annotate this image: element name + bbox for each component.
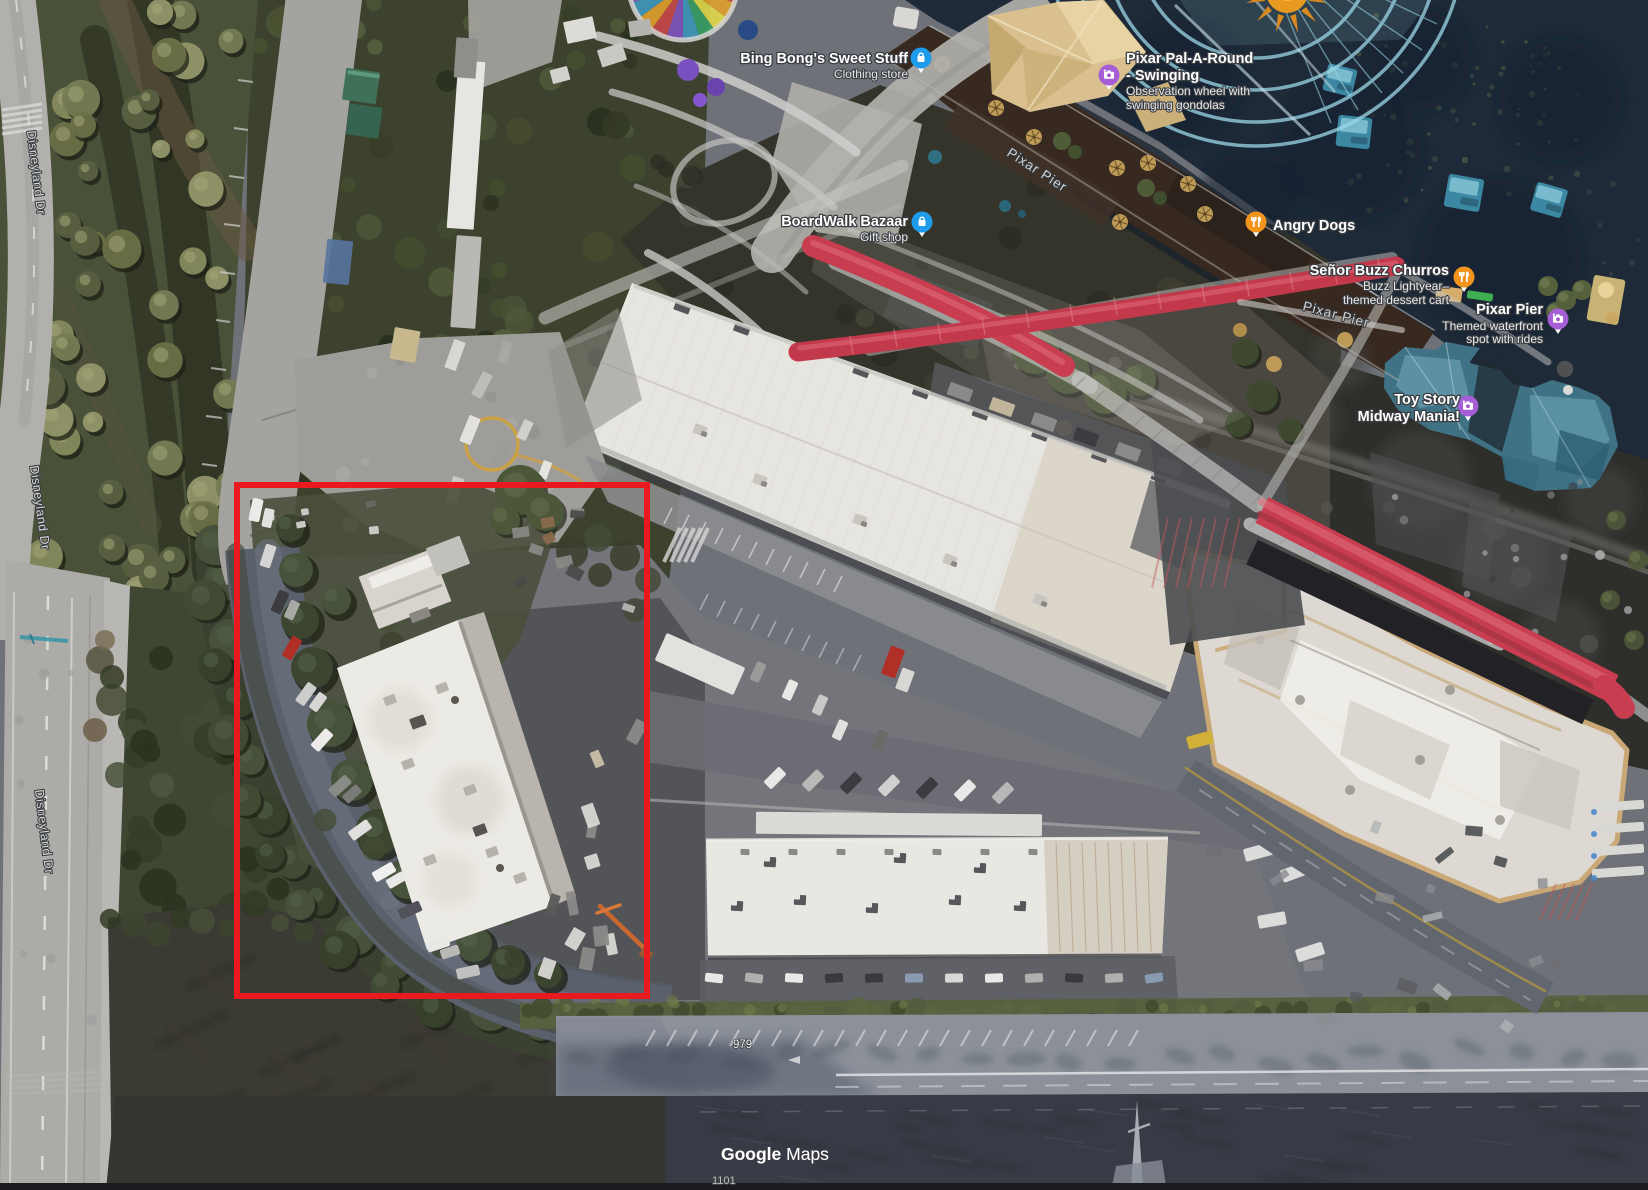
- svg-text:Bing Bong's Sweet Stuff: Bing Bong's Sweet Stuff: [740, 51, 908, 67]
- svg-text:swinging gondolas: swinging gondolas: [1126, 98, 1225, 112]
- svg-text:themed dessert cart: themed dessert cart: [1343, 293, 1450, 307]
- svg-text:Toy Story: Toy Story: [1394, 392, 1460, 408]
- svg-text:Pixar Pier: Pixar Pier: [1476, 302, 1543, 318]
- svg-text:BoardWalk Bazaar: BoardWalk Bazaar: [781, 214, 908, 230]
- svg-text:Google Maps: Google Maps: [721, 1144, 829, 1164]
- svg-text:Gift shop: Gift shop: [860, 230, 908, 244]
- svg-text:Observation wheel with: Observation wheel with: [1126, 84, 1250, 98]
- svg-text:1101: 1101: [712, 1175, 736, 1187]
- svg-text:Clothing store: Clothing store: [834, 67, 908, 81]
- svg-text:979: 979: [733, 1039, 752, 1051]
- svg-text:Themed waterfront: Themed waterfront: [1442, 319, 1543, 333]
- svg-text:Midway Mania!: Midway Mania!: [1358, 409, 1460, 425]
- svg-text:Señor Buzz Churros: Señor Buzz Churros: [1310, 263, 1449, 279]
- svg-text:spot with rides: spot with rides: [1466, 332, 1543, 346]
- svg-text:- Swinging: - Swinging: [1126, 68, 1199, 84]
- svg-text:Angry Dogs: Angry Dogs: [1273, 218, 1355, 234]
- svg-text:Pixar Pal-A-Round: Pixar Pal-A-Round: [1126, 51, 1253, 67]
- svg-text:Buzz Lightyear–: Buzz Lightyear–: [1363, 279, 1449, 293]
